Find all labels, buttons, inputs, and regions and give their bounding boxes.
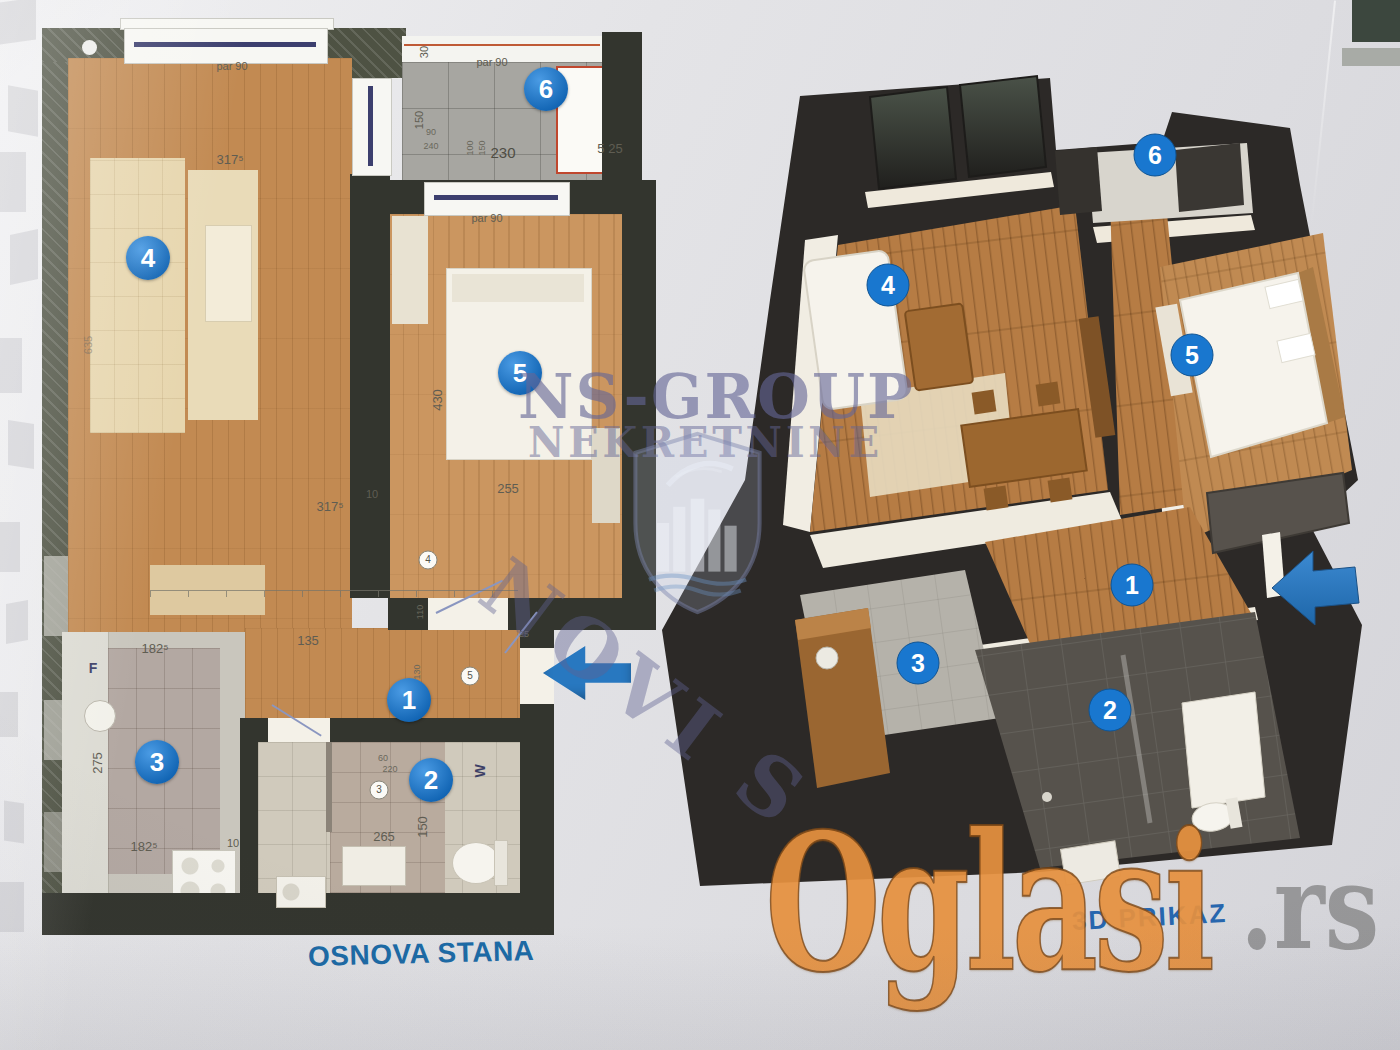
window-glass-line — [434, 195, 558, 200]
dim-label: 110 — [415, 605, 425, 619]
dim-label: 265 — [373, 829, 395, 844]
dim-label: par 90 — [471, 212, 502, 224]
door-hinge-dot — [82, 40, 97, 55]
paper-fragment — [0, 0, 36, 45]
terrace-dim-line-red — [404, 44, 600, 46]
fridge-label: F — [89, 660, 98, 676]
paper-fragment — [0, 882, 24, 932]
wall-light-segment — [44, 556, 68, 636]
circled-marker: 4 — [419, 551, 438, 570]
paper-fragment — [0, 338, 22, 393]
wall — [350, 174, 390, 598]
paper-fragment — [6, 600, 28, 644]
kitchen-sink-3d — [816, 647, 838, 669]
svg-text:4: 4 — [881, 271, 895, 299]
dim-label: par 90 — [216, 60, 247, 72]
shower-line — [326, 742, 332, 832]
room-marker-5: 5 — [1171, 334, 1213, 376]
dresser — [392, 216, 428, 324]
site-watermark: Oglasi — [765, 808, 1211, 998]
coffee-table-3d — [905, 303, 974, 390]
room-marker-2: 2 — [409, 758, 453, 802]
chair-3d — [984, 486, 1009, 511]
dim-label: 60 — [378, 753, 388, 763]
dim-label: 240 — [423, 141, 438, 151]
wc-label: W — [472, 764, 488, 777]
svg-text:6: 6 — [1148, 141, 1162, 169]
window-glass-line — [134, 42, 316, 47]
paper-fragment — [8, 85, 38, 136]
chair-3d — [972, 390, 997, 415]
dim-label: 30 — [418, 46, 430, 58]
dim-label: 150 — [415, 816, 430, 838]
room-marker-3: 3 — [135, 740, 179, 784]
agency-shield-logo — [630, 428, 765, 618]
dim-label: par 90 — [476, 56, 507, 68]
dim-label: 317⁵ — [216, 152, 243, 167]
room-marker-4: 4 — [126, 236, 170, 280]
dim-label: 5 25 — [597, 141, 622, 156]
terrace-window-3d — [1175, 143, 1244, 212]
chair-3d — [1036, 382, 1061, 407]
dim-label: 317⁵ — [316, 499, 343, 514]
room-marker-6: 6 — [524, 67, 568, 111]
dim-label: 130 — [412, 664, 422, 679]
room-marker-3: 3 — [897, 642, 939, 684]
paper-fragment — [4, 801, 24, 844]
window-3d — [870, 87, 956, 189]
paper-fragment — [10, 229, 38, 285]
photo-corner-dark — [1352, 0, 1400, 42]
dim-label: 430 — [430, 389, 445, 411]
paper-fragment — [0, 152, 26, 212]
room-marker-1: 1 — [1111, 564, 1153, 606]
dim-label: 255 — [497, 481, 519, 496]
svg-text:3: 3 — [911, 649, 925, 677]
svg-text:5: 5 — [1185, 341, 1199, 369]
dim-label: 100 — [465, 140, 475, 155]
window-glass-line — [368, 86, 373, 166]
dim-label: 150 — [477, 140, 487, 155]
listing-photo: 4 5 6 1 2 3 3 4 5 par 90 317⁵ 30 par 90 … — [0, 0, 1400, 1050]
floorplan-title: OSNOVA STANA — [308, 935, 535, 973]
paper-fragment — [0, 692, 18, 737]
window-3d — [960, 76, 1046, 177]
dim-label: 135 — [297, 633, 319, 648]
site-watermark-tld: .rs — [1240, 848, 1379, 966]
room-marker-1: 1 — [387, 678, 431, 722]
wall — [240, 718, 258, 908]
paper-fragment — [8, 420, 34, 469]
svg-text:2: 2 — [1103, 696, 1117, 724]
dim-label: 10 — [227, 837, 239, 849]
dim-label: 90 — [426, 127, 436, 137]
room-marker-2: 2 — [1089, 689, 1131, 731]
circled-marker: 5 — [461, 667, 480, 686]
coffee-table — [205, 225, 252, 322]
washing-machine — [276, 876, 326, 908]
terrace-door-3d — [1055, 147, 1102, 215]
dim-label: 182⁵ — [141, 641, 168, 656]
kitchen-sink — [84, 700, 116, 732]
chair-3d — [1048, 478, 1073, 503]
room-marker-6: 6 — [1134, 134, 1176, 176]
toilet-tank — [494, 840, 508, 886]
bed-pillows — [452, 274, 584, 302]
svg-text:1: 1 — [1125, 571, 1139, 599]
dim-label: 10 — [366, 488, 378, 500]
dim-label: 230 — [490, 144, 515, 161]
dimension-line — [150, 590, 518, 597]
dim-label: 275 — [90, 752, 105, 774]
dim-label: 220 — [382, 764, 397, 774]
dim-label: 635 — [82, 336, 94, 354]
bath-sink — [342, 846, 406, 886]
dim-label: 150 — [413, 111, 425, 129]
paper-fragment — [0, 522, 20, 572]
room-marker-4: 4 — [867, 264, 909, 306]
circled-marker: 3 — [370, 781, 389, 800]
dim-label: 182⁵ — [130, 839, 157, 854]
wall — [602, 32, 642, 184]
rug — [90, 158, 185, 433]
toilet — [452, 842, 500, 884]
